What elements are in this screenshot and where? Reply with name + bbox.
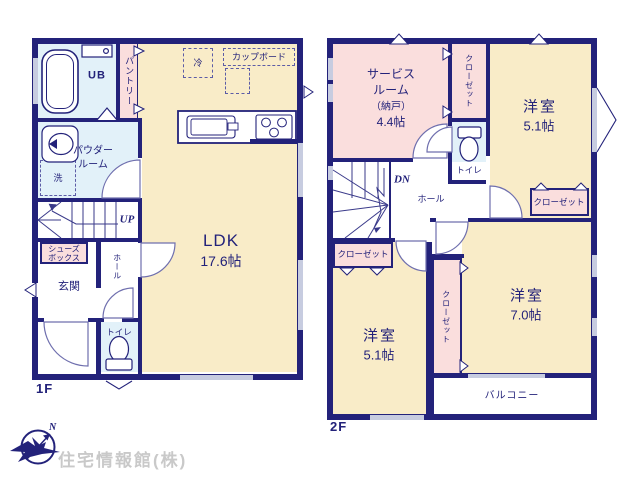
wall: [430, 378, 434, 414]
wall: [452, 118, 486, 122]
door-opening: [413, 158, 448, 162]
label-powder-1: パウダー: [73, 145, 113, 157]
label-service-1: サービス: [367, 68, 415, 82]
label-service-3: （納戸）: [371, 101, 411, 113]
label-hall-2f: ホール: [417, 194, 444, 204]
label-bedroom-se: 洋室: [510, 287, 544, 304]
label-bedroom-sw: 洋室: [363, 327, 397, 344]
label-shoes-1: シューズ: [48, 244, 80, 253]
wall: [32, 38, 303, 44]
label-toilet-2f: トイレ: [456, 166, 482, 176]
label-pantry: パントリー: [124, 56, 134, 106]
window-opening-icon: [597, 88, 616, 152]
label-powder-2: ルーム: [78, 159, 108, 171]
label-genkan: 玄関: [58, 281, 80, 294]
window: [328, 58, 333, 80]
counter-outline: [225, 68, 250, 94]
wall: [327, 414, 597, 420]
entrance-step-icon: [106, 381, 132, 389]
window: [33, 58, 38, 104]
compass-icon: [10, 431, 60, 464]
wall: [426, 254, 464, 258]
window: [370, 415, 424, 420]
door-opening: [32, 283, 38, 297]
window: [328, 166, 333, 180]
compass-north-label: N: [49, 422, 56, 434]
label-closet-w: クローゼット: [337, 250, 388, 260]
label-fridge: 冷: [193, 58, 202, 68]
wall: [96, 322, 101, 374]
label-stairs-dn: DN: [394, 174, 410, 187]
door-opening: [486, 156, 490, 188]
door-opening: [448, 126, 452, 152]
label-toilet-1f: トイレ: [106, 328, 132, 338]
label-stairs-up: UP: [120, 214, 135, 227]
label-cupboard: カップボード: [232, 52, 286, 62]
window: [592, 318, 597, 336]
label-bedroom-ne: 洋室: [523, 98, 557, 115]
label-bedroom-se-size: 7.0帖: [510, 309, 541, 324]
door-opening: [44, 318, 88, 322]
floorplan-canvas: UB パントリー 冷 カップボード パウダー ルーム 洗 UP シューズ ボック…: [0, 0, 640, 480]
window: [328, 84, 333, 102]
door-opening: [96, 288, 101, 318]
window: [592, 88, 597, 152]
label-ub: UB: [88, 70, 106, 83]
wall: [116, 44, 120, 120]
wall: [327, 38, 597, 44]
wall: [327, 238, 395, 242]
window: [298, 260, 303, 330]
wall: [448, 180, 490, 184]
floor-label-2f: 2F: [330, 420, 347, 435]
label-service-size: 4.4帖: [377, 116, 406, 130]
label-ldk-size: 17.6帖: [200, 253, 241, 269]
label-bedroom-sw-size: 5.1帖: [363, 349, 394, 364]
label-bedroom-ne-size: 5.1帖: [523, 120, 554, 135]
wall: [32, 374, 303, 380]
wall: [38, 118, 142, 122]
label-laundry: 洗: [53, 173, 62, 183]
wall: [38, 238, 141, 242]
door-opening: [138, 158, 142, 198]
door-opening: [138, 243, 142, 277]
window: [592, 255, 597, 277]
label-closet-mid: クローゼット: [441, 290, 450, 344]
door-opening: [436, 218, 468, 222]
label-balcony: バルコニー: [485, 390, 540, 402]
window: [180, 375, 253, 380]
label-closet-top: クローゼット: [464, 54, 473, 108]
label-closet-ne: クローゼット: [533, 198, 584, 208]
wall: [389, 162, 391, 240]
label-ldk: LDK: [203, 231, 239, 251]
window: [468, 374, 545, 378]
company-logo-text: 住宅情報館(株): [58, 451, 187, 471]
window: [298, 143, 303, 197]
label-hall-1f: ホール: [112, 254, 121, 281]
label-shoes-2: ボックス: [48, 253, 80, 262]
wall: [38, 198, 142, 202]
room-bathroom-ub: [38, 44, 120, 120]
label-service-2: ルーム: [373, 84, 409, 98]
door-opening: [104, 318, 122, 322]
floor-label-1f: 1F: [36, 382, 53, 397]
